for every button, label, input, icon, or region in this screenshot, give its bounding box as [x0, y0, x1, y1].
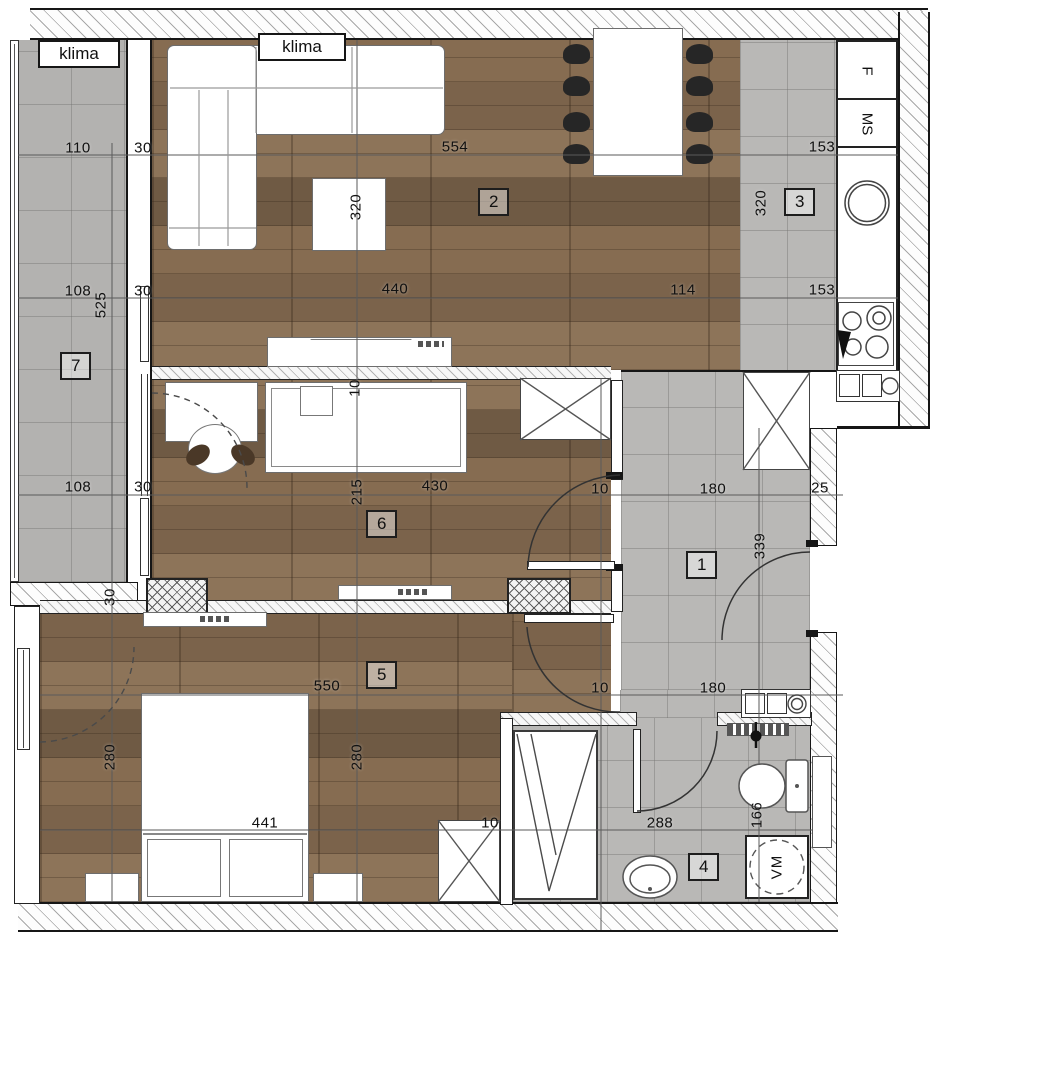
dimension-label: 30: [103, 588, 118, 606]
dimension-label: 280: [103, 744, 118, 771]
shaft-column-right: [507, 578, 571, 614]
dimension-label: 110: [65, 141, 90, 156]
shower: [513, 730, 598, 900]
dimension-label: 320: [754, 190, 769, 217]
dining-table: [593, 28, 683, 176]
bedroom6-pillow: [300, 386, 333, 416]
wall-right-top: [898, 12, 930, 428]
room-number-label: 3: [784, 188, 815, 216]
dimension-label: 153: [809, 283, 836, 298]
shaft-column-left: [146, 578, 208, 614]
washbasin-drawer: [767, 693, 787, 714]
nightstand: [85, 873, 139, 902]
dining-chair: [686, 76, 713, 96]
dimension-label: 30: [134, 141, 152, 156]
cabinet-drawer: [839, 374, 860, 397]
balcony-floor: [18, 40, 126, 582]
bedroom6-door-leaf: [527, 561, 615, 570]
dimension-label: 30: [134, 284, 152, 299]
bedroom5-pillow: [229, 839, 303, 897]
desk-chair: [188, 424, 242, 474]
washing-machine-label: VM: [770, 855, 785, 880]
door-jamb: [806, 630, 818, 637]
wall-bedroom6-hall-lower: [611, 568, 623, 612]
room-number-label: 7: [60, 352, 91, 380]
dimension-label: 180: [700, 482, 727, 497]
dimension-label: 320: [349, 194, 364, 221]
tv-board-bedroom6: [338, 585, 452, 600]
tv-soundbar: [200, 616, 230, 622]
balcony-door-panel-lower: [140, 498, 149, 576]
dimension-label: 440: [382, 282, 409, 297]
bedroom5-blanket-line: [143, 833, 307, 835]
bedroom5-door-leaf: [524, 614, 614, 623]
bedroom6-wardrobe: [520, 378, 611, 440]
bedroom5-wardrobe: [438, 820, 500, 902]
floor-plan: klima klima F MS VM 11030554153108304401…: [0, 0, 1052, 1080]
dimension-label: 554: [442, 140, 469, 155]
wall-step-line: [837, 426, 930, 429]
dimension-label: 108: [65, 480, 92, 495]
wall-bedroom5-bathroom: [500, 718, 513, 905]
tv-soundbar: [418, 341, 444, 347]
wall-bottom: [18, 902, 838, 932]
dimension-label: 166: [750, 802, 765, 829]
bath-door-leaf: [633, 729, 641, 813]
fridge-label: F: [860, 66, 875, 75]
dimension-label: 215: [350, 479, 365, 506]
dimension-label: 280: [350, 744, 365, 771]
dining-chair: [563, 112, 590, 132]
towel-radiator: [727, 723, 789, 736]
dimension-label: 180: [700, 681, 727, 696]
dimension-label: 10: [481, 816, 499, 831]
room-number-label: 5: [366, 661, 397, 689]
dimension-label: 550: [314, 679, 341, 694]
klima-box-right: klima: [258, 33, 346, 61]
dining-chair: [563, 44, 590, 64]
dimension-label: 339: [753, 533, 768, 560]
dimension-label: 441: [252, 816, 279, 831]
dining-chair: [686, 44, 713, 64]
dimension-label: 10: [591, 681, 609, 696]
wall-top: [30, 8, 928, 40]
door-jamb: [606, 472, 623, 479]
stove: [838, 302, 894, 366]
room-number-label: 6: [366, 510, 397, 538]
balcony-railing-line: [14, 44, 15, 578]
dimension-label: 114: [670, 283, 695, 298]
dimension-label: 525: [94, 292, 109, 319]
dimension-label: 108: [65, 284, 92, 299]
dining-chair: [686, 144, 713, 164]
nightstand: [313, 873, 363, 902]
klima-label: klima: [282, 37, 322, 57]
dimension-label: 153: [809, 140, 836, 155]
door-jamb: [806, 540, 818, 547]
room-number-label: 2: [478, 188, 509, 216]
wall-bedroom6-hall-upper: [611, 380, 623, 480]
dimension-label: 430: [422, 479, 449, 494]
hall-wardrobe: [743, 372, 810, 470]
dimension-label: 30: [134, 480, 152, 495]
dimension-label: 25: [811, 481, 829, 496]
sofa-chaise: [167, 45, 257, 250]
klima-box-left: klima: [38, 40, 120, 68]
ms-label: MS: [860, 113, 875, 136]
washbasin-drawer: [745, 693, 765, 714]
klima-label: klima: [59, 44, 99, 64]
dining-chair: [686, 112, 713, 132]
dining-chair: [563, 144, 590, 164]
room-number-label: 4: [688, 853, 719, 881]
bathroom-niche: [812, 756, 832, 848]
bedroom5-pillow: [147, 839, 221, 897]
dining-chair: [563, 76, 590, 96]
room-number-label: 1: [686, 551, 717, 579]
tv-soundbar: [398, 589, 428, 595]
dimension-label: 10: [348, 379, 363, 397]
dimension-label: 288: [647, 816, 674, 831]
bedroom5-window-line: [23, 650, 24, 748]
cabinet-drawer: [862, 374, 882, 397]
dimension-label: 10: [591, 482, 609, 497]
wall-bathroom-top-left: [500, 712, 637, 726]
